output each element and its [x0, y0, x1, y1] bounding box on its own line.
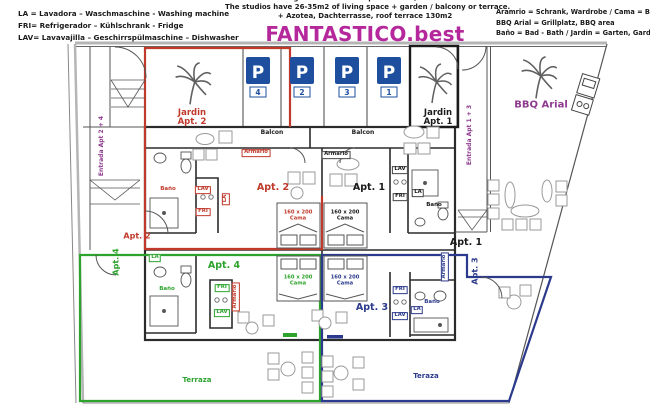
legend-right-line: Aramrio = Schrank, Wardrobe / Cama = Bet… — [496, 7, 650, 18]
label-lav-apt1: LAV — [392, 166, 408, 174]
parking-stall-number: 4 — [255, 88, 260, 97]
bed-word: Cama — [331, 216, 360, 222]
label-la-apt3: LA — [411, 306, 423, 314]
label-lav-apt2: LAV — [195, 186, 211, 194]
parking-sign-letter: P — [296, 63, 308, 83]
label-balcon-apt1: Balcon — [352, 130, 375, 136]
label-bed-apt3: 160 x 200 Cama — [331, 275, 360, 286]
parking-sign-letter: P — [252, 63, 264, 83]
label-bed-apt4: 160 x 200 Cama — [284, 275, 313, 286]
label-fri-apt4: FRI — [215, 284, 230, 292]
legend-left-line: LAV= Lavavajilla – Geschirrspülmaschine … — [18, 32, 239, 44]
header-center: Die Studios verfügen über 26-35m2 plus B… — [225, 0, 505, 46]
palm-tree-icon — [419, 64, 452, 103]
parking-sign-3: P 3 — [335, 57, 359, 97]
bbq-grill-icon — [571, 74, 599, 116]
palm-tree-icon — [176, 63, 211, 105]
label-lav-apt3: LAV — [392, 312, 408, 320]
label-balcon-apt2: Balcon — [261, 130, 284, 136]
legend-right-line: BBQ Arial = Grillplatz, BBQ area — [496, 18, 650, 29]
label-lav-apt4: LAV — [214, 309, 230, 317]
label-bed-apt1: 160 x 200 Cama — [331, 210, 360, 221]
label-bano-apt2: Baño — [160, 187, 176, 193]
intro-line-roof: + Azotea, Dachterrasse, roof terrace 130… — [225, 12, 505, 21]
label-armario-apt2: Armario — [242, 149, 271, 157]
label-la-apt1: LA — [412, 189, 424, 197]
jardin-apt1-line2: Apt. 1 — [424, 118, 453, 127]
label-armario-apt4: Armario — [232, 283, 240, 312]
jardin-apt2-line2: Apt. 2 — [178, 118, 207, 127]
bed-word: Cama — [284, 281, 313, 287]
label-apt1: Apt. 1 — [353, 183, 385, 193]
legend-left-line: LA = Lavadora – Waschmaschine - Washing … — [18, 8, 239, 20]
label-bano-apt3: Baño — [424, 300, 440, 306]
legend-right-line: Baño = Bad - Bath / Jardin = Garten, Gar… — [496, 28, 650, 39]
parking-sign-letter: P — [383, 63, 395, 83]
label-apt3: Apt. 3 — [356, 303, 388, 313]
label-armario-apt3: Armario — [441, 253, 449, 282]
label-apt1-entry: Apt. 1 — [450, 238, 482, 248]
legend-left: LA = Lavadora – Waschmaschine - Washing … — [18, 8, 239, 44]
intro-line-en: The studios have 26-35m2 of living space… — [225, 3, 505, 12]
label-apt2-entry: Apt. 2 — [123, 233, 150, 242]
parking-sign-2: P 2 — [290, 57, 314, 97]
label-bano-apt4: Baño — [159, 287, 175, 293]
label-bano-apt1: Baño — [426, 203, 442, 209]
label-armario-apt1: Armario — [322, 151, 351, 159]
label-jardin-apt2: Jardin Apt. 2 — [178, 109, 207, 127]
label-jardin-apt1: Jardin Apt. 1 — [424, 109, 453, 127]
parking-stall-number: 2 — [299, 88, 304, 97]
legend-left-line: FRI= Refrigerador – Kühlschrank - Fridge — [18, 20, 239, 32]
label-apt2: Apt. 2 — [257, 183, 289, 193]
parking-sign-1: P 1 — [377, 57, 401, 97]
parking-stall-number: 1 — [386, 88, 391, 97]
label-entrada-apt2-4: Entrada Apt 2 + 4 — [99, 116, 105, 176]
legend-right: Aramrio = Schrank, Wardrobe / Cama = Bet… — [496, 7, 650, 39]
label-entrada-apt1-3: Entrada Apt 1 + 3 — [467, 105, 473, 165]
brand-logo: FANTASTICO.best — [225, 22, 505, 46]
palm-tree-icon — [522, 57, 557, 99]
label-apt4-entry: Apt. 4 — [113, 248, 122, 275]
apt3-threshold — [327, 335, 343, 339]
label-apt3-entry: Apt. 3 — [472, 257, 481, 284]
bed-word: Cama — [284, 216, 313, 222]
parking-stall-number: 3 — [344, 88, 349, 97]
label-fri-apt3: FRI — [393, 286, 408, 294]
bed-word: Cama — [331, 281, 360, 287]
label-terraza-apt4: Terraza — [182, 377, 211, 385]
apt4-threshold — [283, 333, 297, 337]
floorplan-drawing: P 4 P 2 P 3 P 1 — [0, 0, 650, 420]
parking-sign-letter: P — [341, 63, 353, 83]
label-fri-apt2: FRI — [196, 208, 211, 216]
furniture — [193, 126, 567, 397]
floorplan-canvas: P 4 P 2 P 3 P 1 LA = Lavadora – Waschmas… — [0, 0, 650, 420]
label-fri-apt1: FRI — [393, 193, 408, 201]
label-la-apt2: LA — [222, 193, 230, 205]
label-teraza-apt3: Teraza — [413, 373, 439, 381]
label-la-apt4: LA — [149, 254, 161, 262]
label-bed-apt2: 160 x 200 Cama — [284, 210, 313, 221]
label-bbq-area: BBQ Arial — [514, 101, 568, 112]
label-apt4: Apt. 4 — [208, 261, 240, 271]
parking-sign-4: P 4 — [246, 57, 270, 97]
